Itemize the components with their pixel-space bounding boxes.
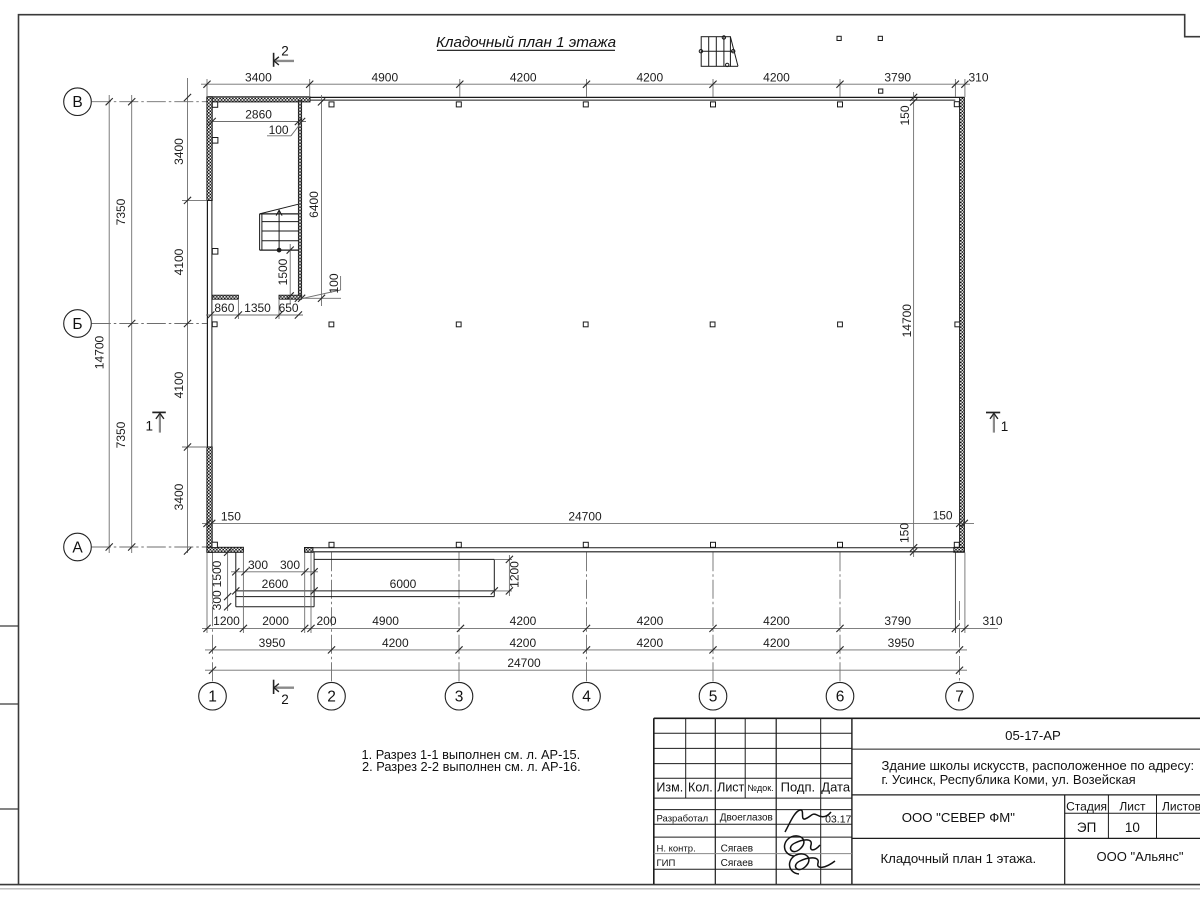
svg-text:Дата: Дата [821, 780, 851, 795]
svg-text:2: 2 [281, 692, 289, 707]
svg-text:4200: 4200 [636, 636, 663, 650]
svg-text:4200: 4200 [382, 636, 409, 650]
svg-text:4200: 4200 [763, 614, 790, 628]
svg-text:3400: 3400 [172, 138, 186, 165]
svg-text:2600: 2600 [262, 577, 289, 591]
svg-text:1500: 1500 [210, 560, 224, 587]
svg-text:А: А [72, 539, 83, 556]
svg-text:7350: 7350 [114, 198, 128, 225]
svg-text:4100: 4100 [172, 248, 186, 275]
svg-text:1: 1 [208, 689, 217, 706]
svg-text:2860: 2860 [245, 107, 272, 121]
svg-text:4900: 4900 [371, 71, 398, 85]
svg-text:24700: 24700 [568, 509, 602, 523]
svg-text:3400: 3400 [172, 483, 186, 510]
svg-text:1200: 1200 [507, 561, 521, 588]
svg-text:7: 7 [955, 689, 964, 706]
svg-text:1: 1 [146, 419, 154, 434]
svg-text:150: 150 [933, 508, 953, 522]
svg-text:Разработал: Разработал [657, 813, 709, 824]
svg-text:1: 1 [1001, 419, 1009, 434]
svg-text:Лист: Лист [1119, 799, 1146, 813]
svg-text:14700: 14700 [900, 304, 914, 338]
svg-text:Листов: Листов [1162, 799, 1200, 813]
svg-text:4: 4 [582, 689, 591, 706]
svg-text:3790: 3790 [884, 614, 911, 628]
svg-text:1350: 1350 [244, 301, 271, 315]
svg-text:Лист: Лист [717, 781, 744, 795]
svg-text:4100: 4100 [172, 371, 186, 398]
svg-text:7350: 7350 [114, 421, 128, 448]
svg-text:6400: 6400 [307, 191, 321, 218]
svg-text:4200: 4200 [636, 71, 663, 85]
svg-text:4200: 4200 [509, 636, 536, 650]
svg-text:Двоеглазов: Двоеглазов [720, 813, 773, 824]
svg-text:Сягаев: Сягаев [721, 843, 754, 854]
svg-text:310: 310 [968, 71, 988, 85]
svg-text:310: 310 [982, 614, 1002, 628]
svg-text:300: 300 [280, 558, 300, 572]
svg-text:150: 150 [898, 523, 912, 543]
svg-text:Б: Б [72, 316, 82, 333]
svg-text:ЭП: ЭП [1077, 820, 1096, 835]
svg-text:3: 3 [455, 689, 464, 706]
svg-text:1200: 1200 [213, 614, 240, 628]
svg-text:10: 10 [1125, 820, 1140, 835]
svg-text:4200: 4200 [763, 71, 790, 85]
svg-text:4200: 4200 [510, 71, 537, 85]
svg-text:4200: 4200 [637, 614, 664, 628]
svg-text:3950: 3950 [888, 636, 915, 650]
svg-text:4200: 4200 [763, 636, 790, 650]
svg-text:14700: 14700 [93, 335, 107, 369]
svg-text:Подп.: Подп. [781, 780, 816, 795]
svg-text:Кол.: Кол. [688, 781, 713, 795]
svg-text:2000: 2000 [262, 614, 289, 628]
svg-text:Кладочный план 1 этажа.: Кладочный план 1 этажа. [880, 851, 1036, 866]
svg-text:300: 300 [248, 558, 268, 572]
svg-text:650: 650 [279, 301, 299, 315]
svg-text:2: 2 [327, 689, 336, 706]
svg-text:860: 860 [214, 301, 234, 315]
svg-text:6000: 6000 [390, 577, 417, 591]
svg-text:№док.: №док. [747, 783, 773, 793]
svg-text:2: 2 [281, 44, 289, 59]
svg-text:05-17-АР: 05-17-АР [1005, 728, 1061, 743]
svg-text:4200: 4200 [510, 614, 537, 628]
svg-text:Н. контр.: Н. контр. [657, 843, 696, 854]
svg-text:3950: 3950 [259, 636, 286, 650]
svg-text:150: 150 [898, 105, 912, 125]
svg-text:ГИП: ГИП [657, 858, 676, 869]
svg-text:В: В [72, 94, 82, 111]
svg-text:2. Разрез 2-2 выполнен см. л.: 2. Разрез 2-2 выполнен см. л. АР-16. [362, 759, 581, 774]
svg-text:150: 150 [221, 509, 241, 523]
svg-text:03.17: 03.17 [825, 814, 851, 826]
svg-text:100: 100 [327, 273, 341, 293]
svg-text:3790: 3790 [884, 71, 911, 85]
svg-text:300: 300 [210, 590, 224, 610]
svg-text:ООО "Альянс": ООО "Альянс" [1097, 849, 1184, 864]
svg-text:Сягаев: Сягаев [721, 858, 754, 869]
svg-text:3400: 3400 [245, 71, 272, 85]
svg-text:4900: 4900 [372, 614, 399, 628]
svg-text:6: 6 [836, 689, 845, 706]
svg-text:1500: 1500 [276, 258, 290, 285]
svg-text:Стадия: Стадия [1066, 799, 1107, 813]
svg-text:Изм.: Изм. [656, 781, 683, 795]
svg-text:100: 100 [269, 123, 289, 137]
svg-text:Кладочный план 1 этажа: Кладочный план 1 этажа [436, 34, 616, 51]
svg-text:г. Усинск, Республика Коми, ул: г. Усинск, Республика Коми, ул. Возейска… [882, 772, 1136, 787]
svg-text:24700: 24700 [507, 656, 541, 670]
svg-text:ООО "СЕВЕР ФМ": ООО "СЕВЕР ФМ" [902, 810, 1016, 825]
svg-text:200: 200 [316, 614, 336, 628]
svg-text:Здание школы искусств, располо: Здание школы искусств, расположенное по … [882, 758, 1195, 773]
svg-text:5: 5 [709, 689, 718, 706]
